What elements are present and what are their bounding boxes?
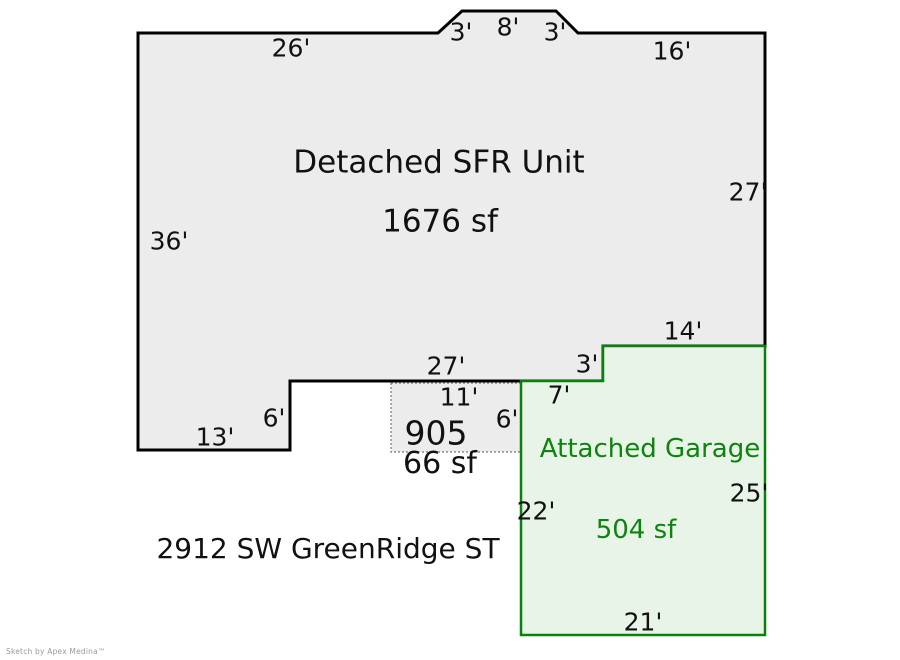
dim-step-7: 7' [548, 383, 571, 408]
dim-porch-6: 6' [496, 407, 519, 432]
dim-left-step-6: 6' [263, 406, 286, 431]
garage-name: Attached Garage [540, 436, 760, 462]
garage-area: 504 sf [596, 517, 677, 543]
dim-top-8: 8' [497, 15, 520, 40]
dim-top-26: 26' [272, 36, 311, 61]
dim-garage-bottom-21: 21' [624, 610, 663, 635]
dim-left-36: 36' [150, 229, 189, 254]
dim-bottom-13: 13' [196, 425, 235, 450]
building-name: Detached SFR Unit [293, 148, 584, 179]
dim-step-3: 3' [576, 352, 599, 377]
floorplan-sketch: Detached SFR Unit 1676 sf 905 66 sf Atta… [0, 0, 900, 660]
building-area: 1676 sf [382, 207, 498, 238]
watermark-text: Sketch by Apex Medina™ [6, 647, 106, 656]
dim-garage-left-22: 22' [517, 499, 556, 524]
porch-name: 905 [405, 417, 468, 450]
dim-garage-right-25: 25' [730, 481, 769, 506]
dim-garage-top-14: 14' [664, 319, 703, 344]
dim-right-27: 27' [729, 180, 768, 205]
dim-bottom-27: 27' [427, 354, 466, 379]
address-text: 2912 SW GreenRidge ST [156, 535, 499, 563]
dim-top-3b: 3' [544, 20, 567, 45]
dim-porch-11: 11' [440, 385, 479, 410]
dim-top-3a: 3' [450, 20, 473, 45]
dim-top-16: 16' [653, 39, 692, 64]
porch-area: 66 sf [403, 449, 477, 479]
